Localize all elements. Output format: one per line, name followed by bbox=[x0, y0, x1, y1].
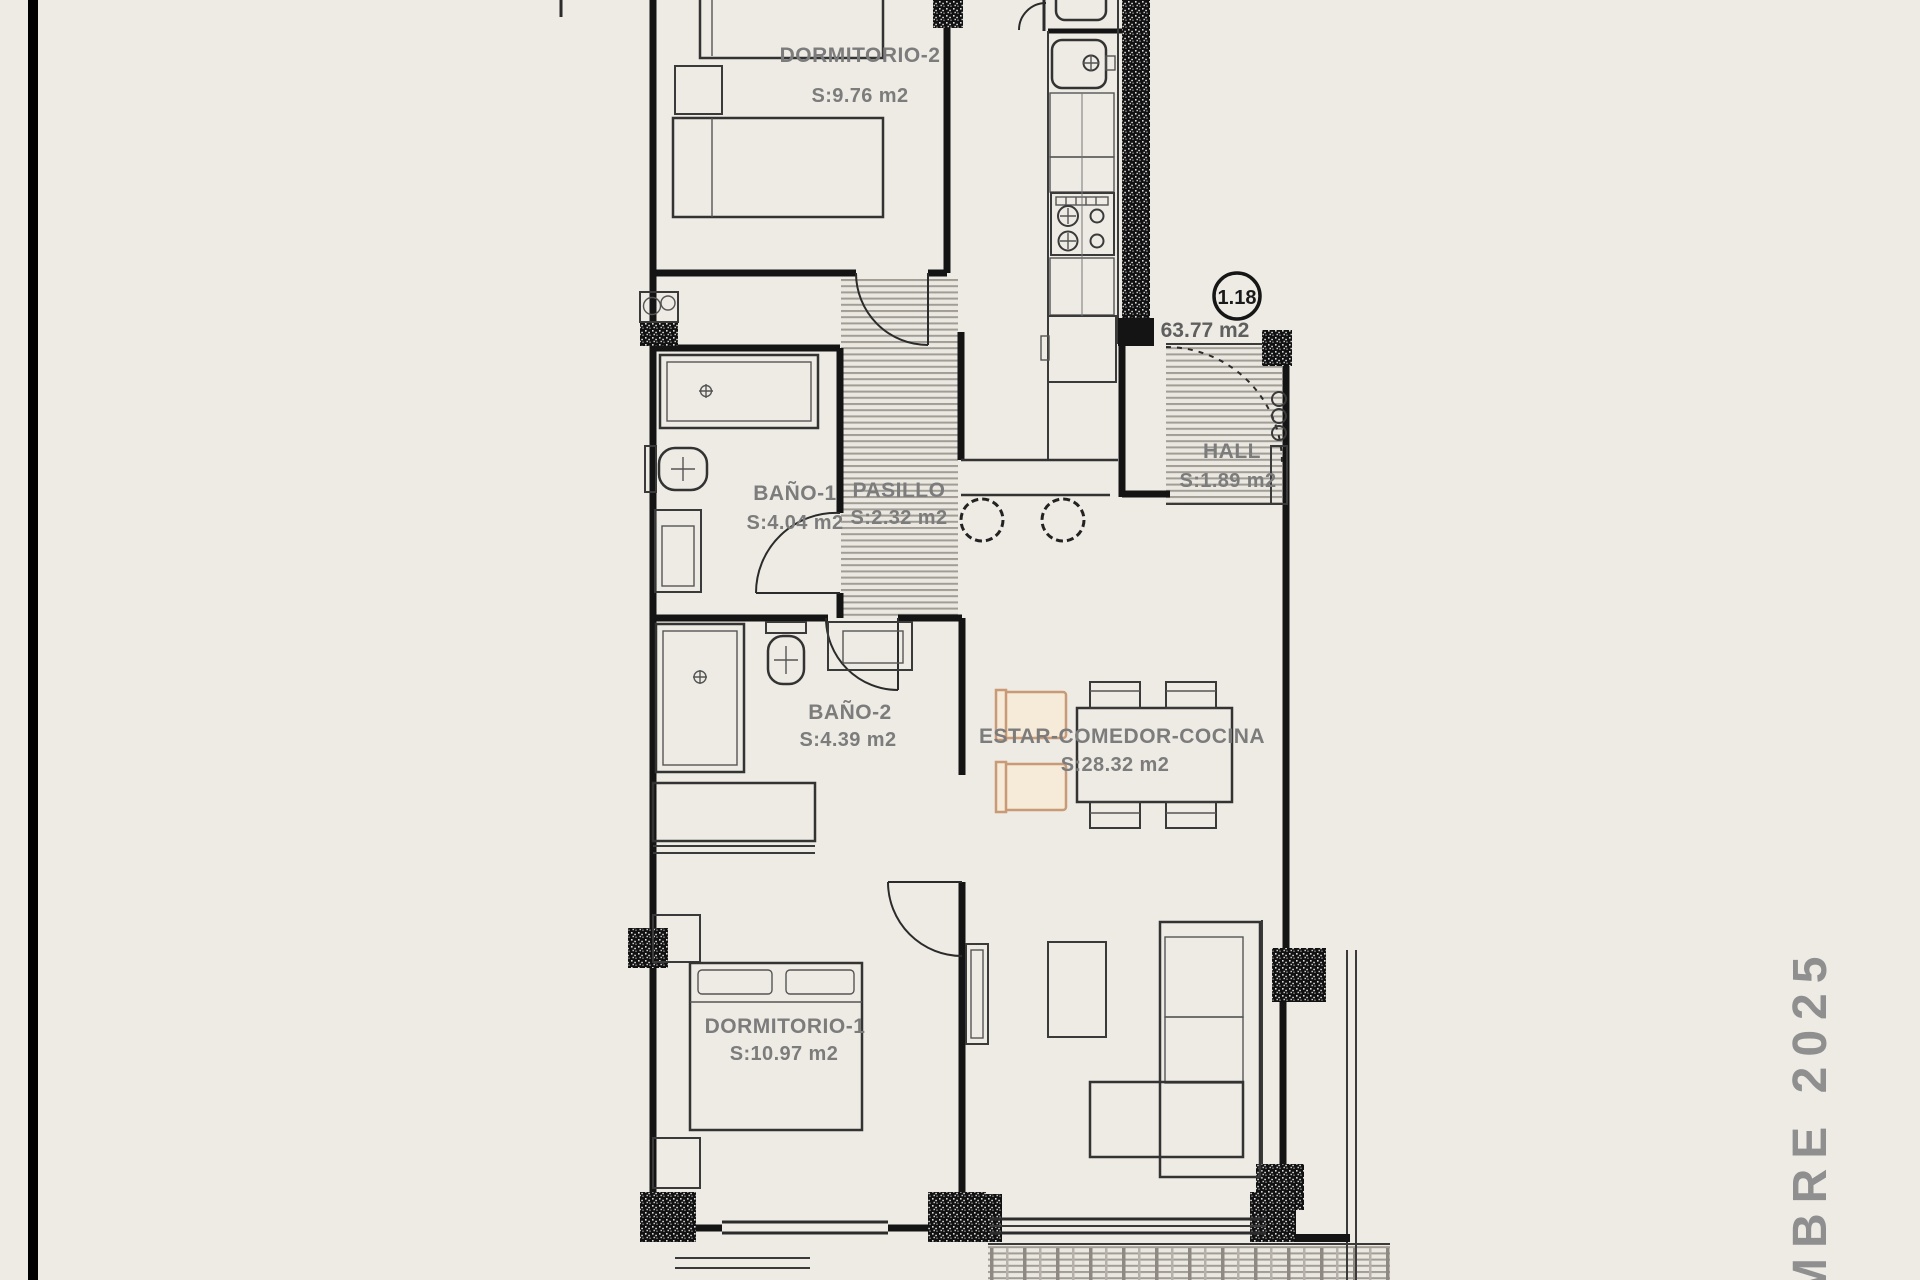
date-stamp: MBRE 2025 bbox=[1784, 947, 1837, 1280]
total-area-label: 63.77 m2 bbox=[1161, 319, 1250, 342]
room-label-pasillo: PASILLO bbox=[853, 479, 946, 502]
svg-text:S:10.97 m2: S:10.97 m2 bbox=[730, 1043, 839, 1065]
svg-text:S:9.76 m2: S:9.76 m2 bbox=[812, 85, 909, 107]
room-label-dormitorio1: DORMITORIO-1 bbox=[705, 1015, 866, 1038]
svg-text:S:1.89 m2: S:1.89 m2 bbox=[1180, 470, 1277, 492]
floor-plan: 1.18 63.77 m2 DORMITORIO-2 S:9.76 m2 BAÑ… bbox=[0, 0, 1920, 1280]
room-label-estar: ESTAR-COMEDOR-COCINA bbox=[979, 725, 1265, 748]
kitchen-exterior-wall-hatch bbox=[1122, 0, 1150, 318]
svg-text:S:28.32 m2: S:28.32 m2 bbox=[1061, 754, 1170, 776]
svg-text:S:4.39 m2: S:4.39 m2 bbox=[800, 729, 897, 751]
room-label-bano1: BAÑO-1 bbox=[753, 482, 837, 505]
terrace-railing bbox=[988, 1248, 1390, 1280]
svg-text:S:4.04 m2: S:4.04 m2 bbox=[747, 512, 844, 534]
pasillo-floor-hatch bbox=[841, 279, 958, 619]
unit-badge-number: 1.18 bbox=[1218, 287, 1257, 309]
room-label-bano2: BAÑO-2 bbox=[808, 701, 892, 724]
frame-left-border bbox=[28, 0, 38, 1280]
room-label-dormitorio2: DORMITORIO-2 bbox=[780, 44, 941, 67]
room-label-hall: HALL bbox=[1203, 440, 1261, 463]
svg-text:S:2.32 m2: S:2.32 m2 bbox=[851, 507, 948, 529]
